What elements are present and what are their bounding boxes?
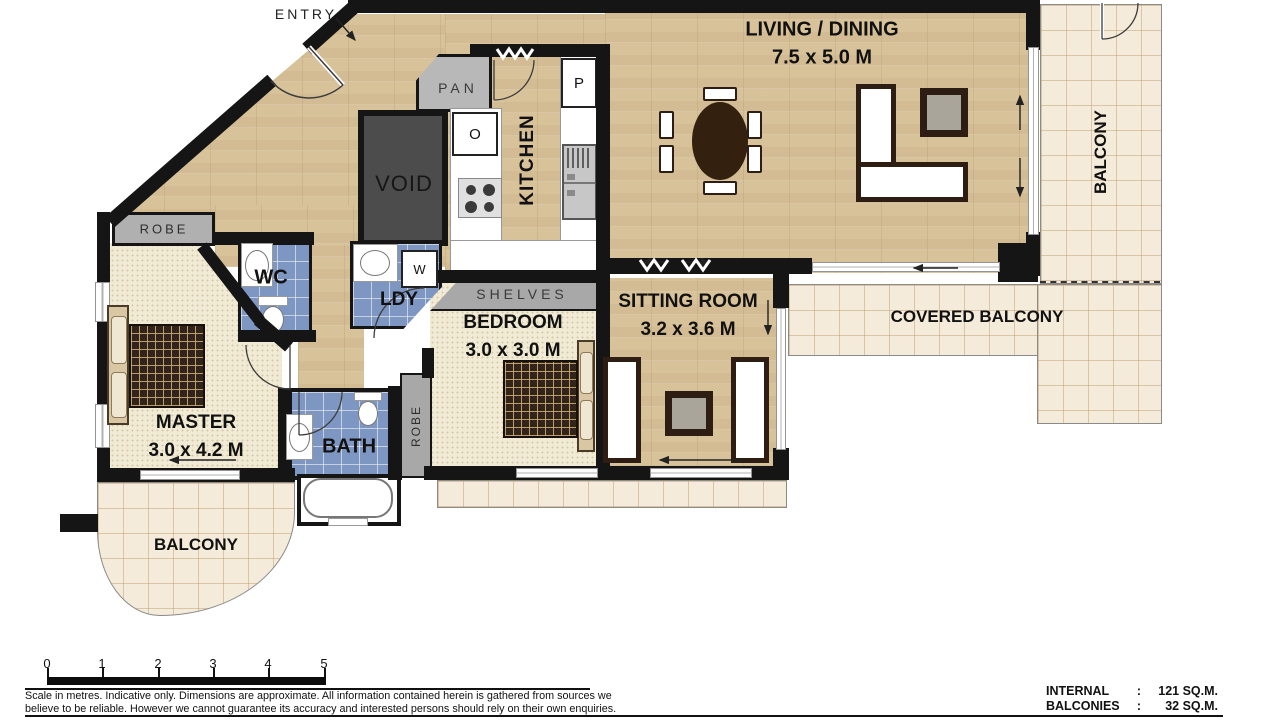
living-room-dims: 7.5 x 5.0 M <box>772 47 872 70</box>
kitchen-label: KITCHEN <box>517 114 539 205</box>
disclaimer-line2: believe to be reliable. However we canno… <box>25 703 616 715</box>
sitting-room-dims: 3.2 x 3.6 M <box>640 319 735 341</box>
dining-chair <box>747 111 762 139</box>
laundry-label: LDY <box>380 289 418 311</box>
covered-balcony-label: COVERED BALCONY <box>891 307 1064 327</box>
dining-chair <box>703 181 737 195</box>
dining-chair <box>659 111 674 139</box>
wall-bath-right <box>388 386 402 480</box>
wc-label: WC <box>254 267 287 290</box>
sitting-bottom-sliding-door <box>650 468 752 478</box>
internal-area-value: 121 SQ.M. <box>1146 684 1218 699</box>
robe-master-label: ROBE <box>140 222 189 237</box>
internal-area-label: INTERNAL <box>1046 684 1132 699</box>
bath-basin <box>289 423 310 452</box>
scale-tick <box>324 668 326 677</box>
wall-top <box>348 0 1036 13</box>
wall-sitting-right-top <box>773 274 789 308</box>
dining-chair <box>703 87 737 101</box>
bathtub <box>303 478 393 518</box>
fridge-handle <box>567 174 575 180</box>
balconies-area-sep: : <box>1132 699 1146 714</box>
balconies-area-label: BALCONIES <box>1046 699 1132 714</box>
sitting-sofa-right <box>731 357 769 463</box>
balcony-strip-floor <box>437 480 787 508</box>
bath-toilet-tank <box>354 392 382 401</box>
cooktop-burner <box>484 202 494 212</box>
pantry-label: P <box>574 75 584 92</box>
scale-bar-rule <box>47 677 326 685</box>
master-label: MASTER <box>156 412 236 434</box>
cooktop-burner <box>466 185 476 195</box>
balcony-right-label: BALCONY <box>1091 110 1111 194</box>
footer-bottom-rule <box>25 715 1223 717</box>
wc-toilet-bowl <box>262 306 284 333</box>
scale-tick <box>47 668 49 677</box>
cooktop-burner <box>483 184 495 196</box>
bedroom-window <box>516 468 598 478</box>
wall-bedroom-top <box>424 270 604 283</box>
master-bed-quilt <box>129 324 205 408</box>
cooktop <box>458 178 502 218</box>
washer-label: W <box>413 262 425 277</box>
cooktop-burner <box>465 201 477 213</box>
living-room-label: LIVING / DINING <box>745 19 898 42</box>
wall-balcony-stub <box>60 514 98 532</box>
disclaimer-line1: Scale in metres. Indicative only. Dimens… <box>25 690 612 702</box>
living-right-sliding-door <box>1028 47 1039 235</box>
master-dims: 3.0 x 4.2 M <box>148 440 243 462</box>
covered-balcony-dashed-line <box>1040 281 1160 283</box>
pantry-cupboard-label: PAN <box>438 80 478 96</box>
pantry-unit: P <box>561 58 597 108</box>
washing-machine: W <box>401 250 438 288</box>
sitting-sofa-left <box>603 357 641 463</box>
scale-tick <box>158 668 160 677</box>
bedroom-bed-pillow <box>580 400 593 440</box>
bedroom-label: BEDROOM <box>463 312 562 334</box>
dining-table <box>692 102 748 180</box>
bath-toilet-bowl <box>358 401 378 426</box>
balconies-area-row: BALCONIES : 32 SQ.M. <box>1046 699 1222 714</box>
dining-chair <box>747 145 762 173</box>
internal-area-row: INTERNAL : 121 SQ.M. <box>1046 684 1222 699</box>
bedroom-bed-pillow <box>580 352 593 394</box>
fridge-divider <box>564 182 595 184</box>
living-coffee-table <box>920 88 968 137</box>
void-label: VOID <box>375 171 433 197</box>
area-summary: INTERNAL : 121 SQ.M. BALCONIES : 32 SQ.M… <box>1046 684 1222 714</box>
living-sofa-corner-patch <box>862 167 890 197</box>
fridge-vent <box>567 148 592 168</box>
balconies-area-value: 32 SQ.M. <box>1146 699 1218 714</box>
shelves-label: SHELVES <box>476 286 568 302</box>
master-bed-pillow <box>111 372 127 418</box>
kitchen-counter-bottom <box>450 240 598 274</box>
wall-bedroom-left <box>422 348 434 378</box>
scale-tick <box>213 668 215 677</box>
sitting-coffee-table <box>665 391 713 436</box>
oven-label: O <box>469 126 481 143</box>
living-balcony-sliding-door <box>812 262 1000 272</box>
sitting-right-window <box>776 308 786 450</box>
balcony-lower-label: BALCONY <box>154 535 238 555</box>
internal-area-sep: : <box>1132 684 1146 699</box>
bedroom-bed-quilt <box>503 360 578 438</box>
master-balcony-sliding-door <box>140 470 240 480</box>
dining-chair <box>659 145 674 173</box>
wall-living-bottom-left <box>596 258 812 274</box>
fridge-handle <box>567 190 575 196</box>
wall-kitchen-right <box>596 44 610 276</box>
scale-tick <box>268 668 270 677</box>
bath-label: BATH <box>322 436 376 459</box>
entry-label: ENTRY <box>275 6 337 22</box>
floor-plan: O P <box>0 0 1280 720</box>
wall-living-bottom-right <box>998 243 1038 282</box>
wall-living-right-top <box>1026 0 1040 50</box>
wall-kitchen-top <box>470 44 610 57</box>
robe-bedroom-label: ROBE <box>409 405 423 447</box>
bathtub-step <box>328 518 368 526</box>
sitting-room-label: SITTING ROOM <box>618 291 757 313</box>
covered-balcony-floor-right <box>1037 284 1162 424</box>
bedroom-dims: 3.0 x 3.0 M <box>465 340 560 362</box>
oven: O <box>452 112 498 156</box>
fridge <box>562 144 597 220</box>
laundry-basin <box>360 250 390 276</box>
master-bed-pillow <box>111 316 127 364</box>
wc-toilet-tank <box>258 296 288 306</box>
scale-tick <box>102 668 104 677</box>
